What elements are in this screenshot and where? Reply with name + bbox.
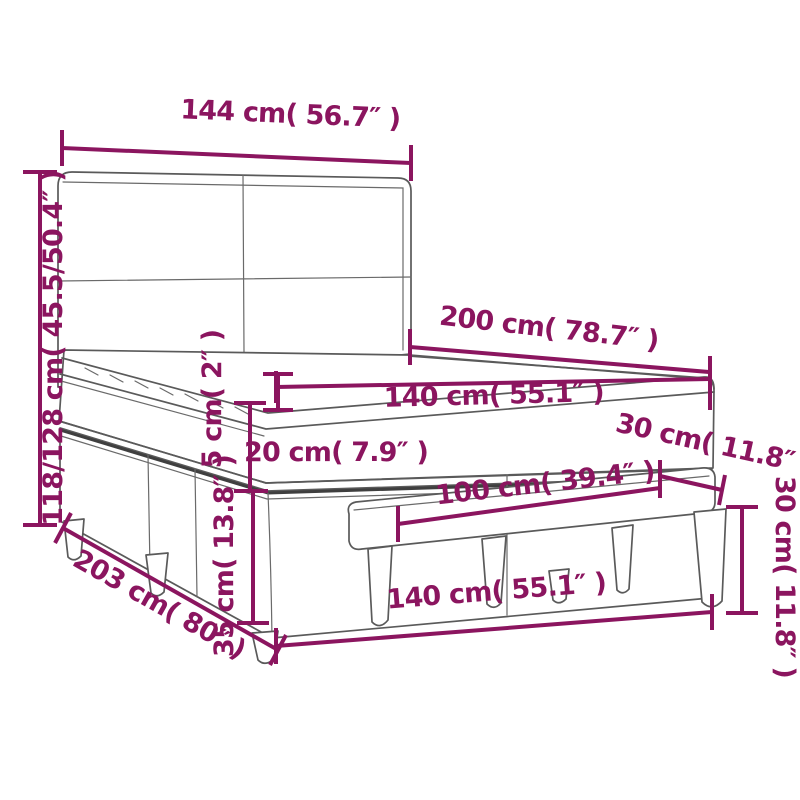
dim-bench-height-label: 30 cm( 11.8″ ) (769, 476, 800, 678)
dim-mattress-width-label: 140 cm( 55.1″ ) (383, 377, 604, 414)
dim-total-height-label: 118/128 cm( 45.5/50.4″ ) (38, 170, 69, 526)
dim-total-height: 118/128 cm( 45.5/50.4″ ) (23, 170, 69, 526)
dim-topper-thickness-label: 5 cm( 2″ ) (197, 330, 228, 469)
dim-bench-height: 30 cm( 11.8″ ) (726, 476, 800, 678)
dim-headboard-width: 144 cm( 56.7″ ) (62, 94, 411, 181)
dim-mattress-thickness-label: 20 cm( 7.9″ ) (244, 437, 428, 468)
dim-headboard-width-label: 144 cm( 56.7″ ) (180, 94, 401, 135)
dimension-diagram: 144 cm( 56.7″ ) 118/128 cm( 45.5/50.4″ )… (0, 0, 800, 800)
dim-bed-length-label: 200 cm( 78.7″ ) (438, 301, 660, 357)
diagram-canvas: 144 cm( 56.7″ ) 118/128 cm( 45.5/50.4″ )… (0, 0, 800, 800)
